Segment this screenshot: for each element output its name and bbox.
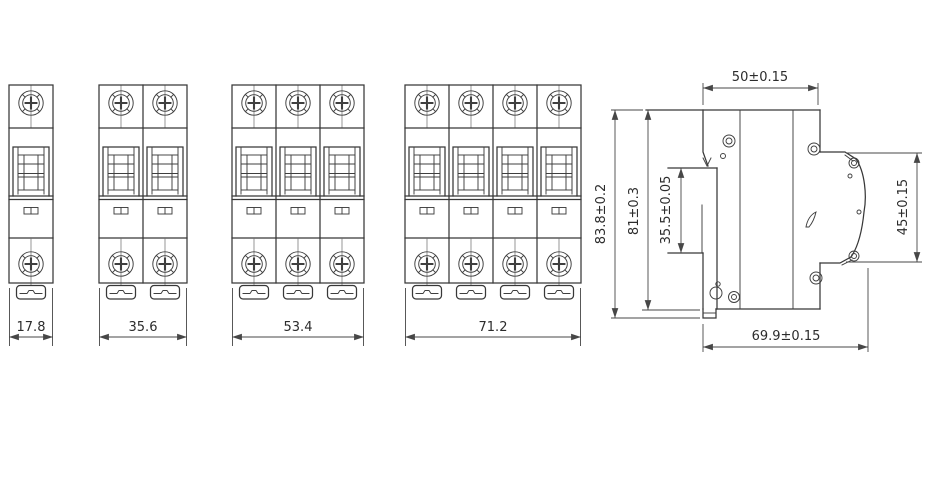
dimension-label-din-slot: 35.5±0.05: [659, 176, 674, 245]
dimension-label-bottom-depth: 69.9±0.15: [752, 329, 821, 344]
latch-slot: [806, 212, 816, 227]
dimension-label-width: 35.6: [129, 320, 158, 335]
front-view-4-pole: 71.2: [405, 85, 581, 346]
breaker-pole-module: [320, 85, 364, 299]
front-view-3-pole: 53.4: [232, 85, 364, 346]
breaker-pole-module: [143, 85, 187, 299]
breaker-pole-module: [493, 85, 537, 299]
dimension-label-housing-height: 81±0.3: [627, 187, 642, 235]
side-view-rivets: [710, 135, 861, 303]
dimension-label-front-face: 45±0.15: [896, 179, 911, 235]
breaker-pole-module: [99, 85, 143, 299]
breaker-pole-module: [449, 85, 493, 299]
mcb-dimension-drawing: 17.8 35.6 53.4 71.2: [0, 0, 933, 500]
dimension-label-width: 71.2: [479, 320, 508, 335]
dimension-label-width: 53.4: [284, 320, 313, 335]
side-view-outline: [646, 110, 865, 318]
breaker-pole-module: [232, 85, 276, 299]
dimension-label-top-width: 50±0.15: [732, 70, 788, 85]
front-view-1-pole: 17.8: [9, 85, 53, 346]
breaker-pole-module: [9, 85, 53, 299]
dimension-label-width: 17.8: [17, 320, 46, 335]
breaker-pole-module: [276, 85, 320, 299]
side-view: 50±0.15 83.8±0.2 81±0.3 35.5±0.05 45±0.1…: [594, 70, 922, 352]
breaker-pole-module: [537, 85, 581, 299]
breaker-pole-module: [405, 85, 449, 299]
drawing-svg: 17.8 35.6 53.4 71.2: [0, 0, 933, 500]
side-view-dimensions: 50±0.15 83.8±0.2 81±0.3 35.5±0.05 45±0.1…: [594, 70, 922, 352]
front-view-2-pole: 35.6: [99, 85, 187, 346]
dimension-label-overall-height: 83.8±0.2: [594, 184, 609, 245]
